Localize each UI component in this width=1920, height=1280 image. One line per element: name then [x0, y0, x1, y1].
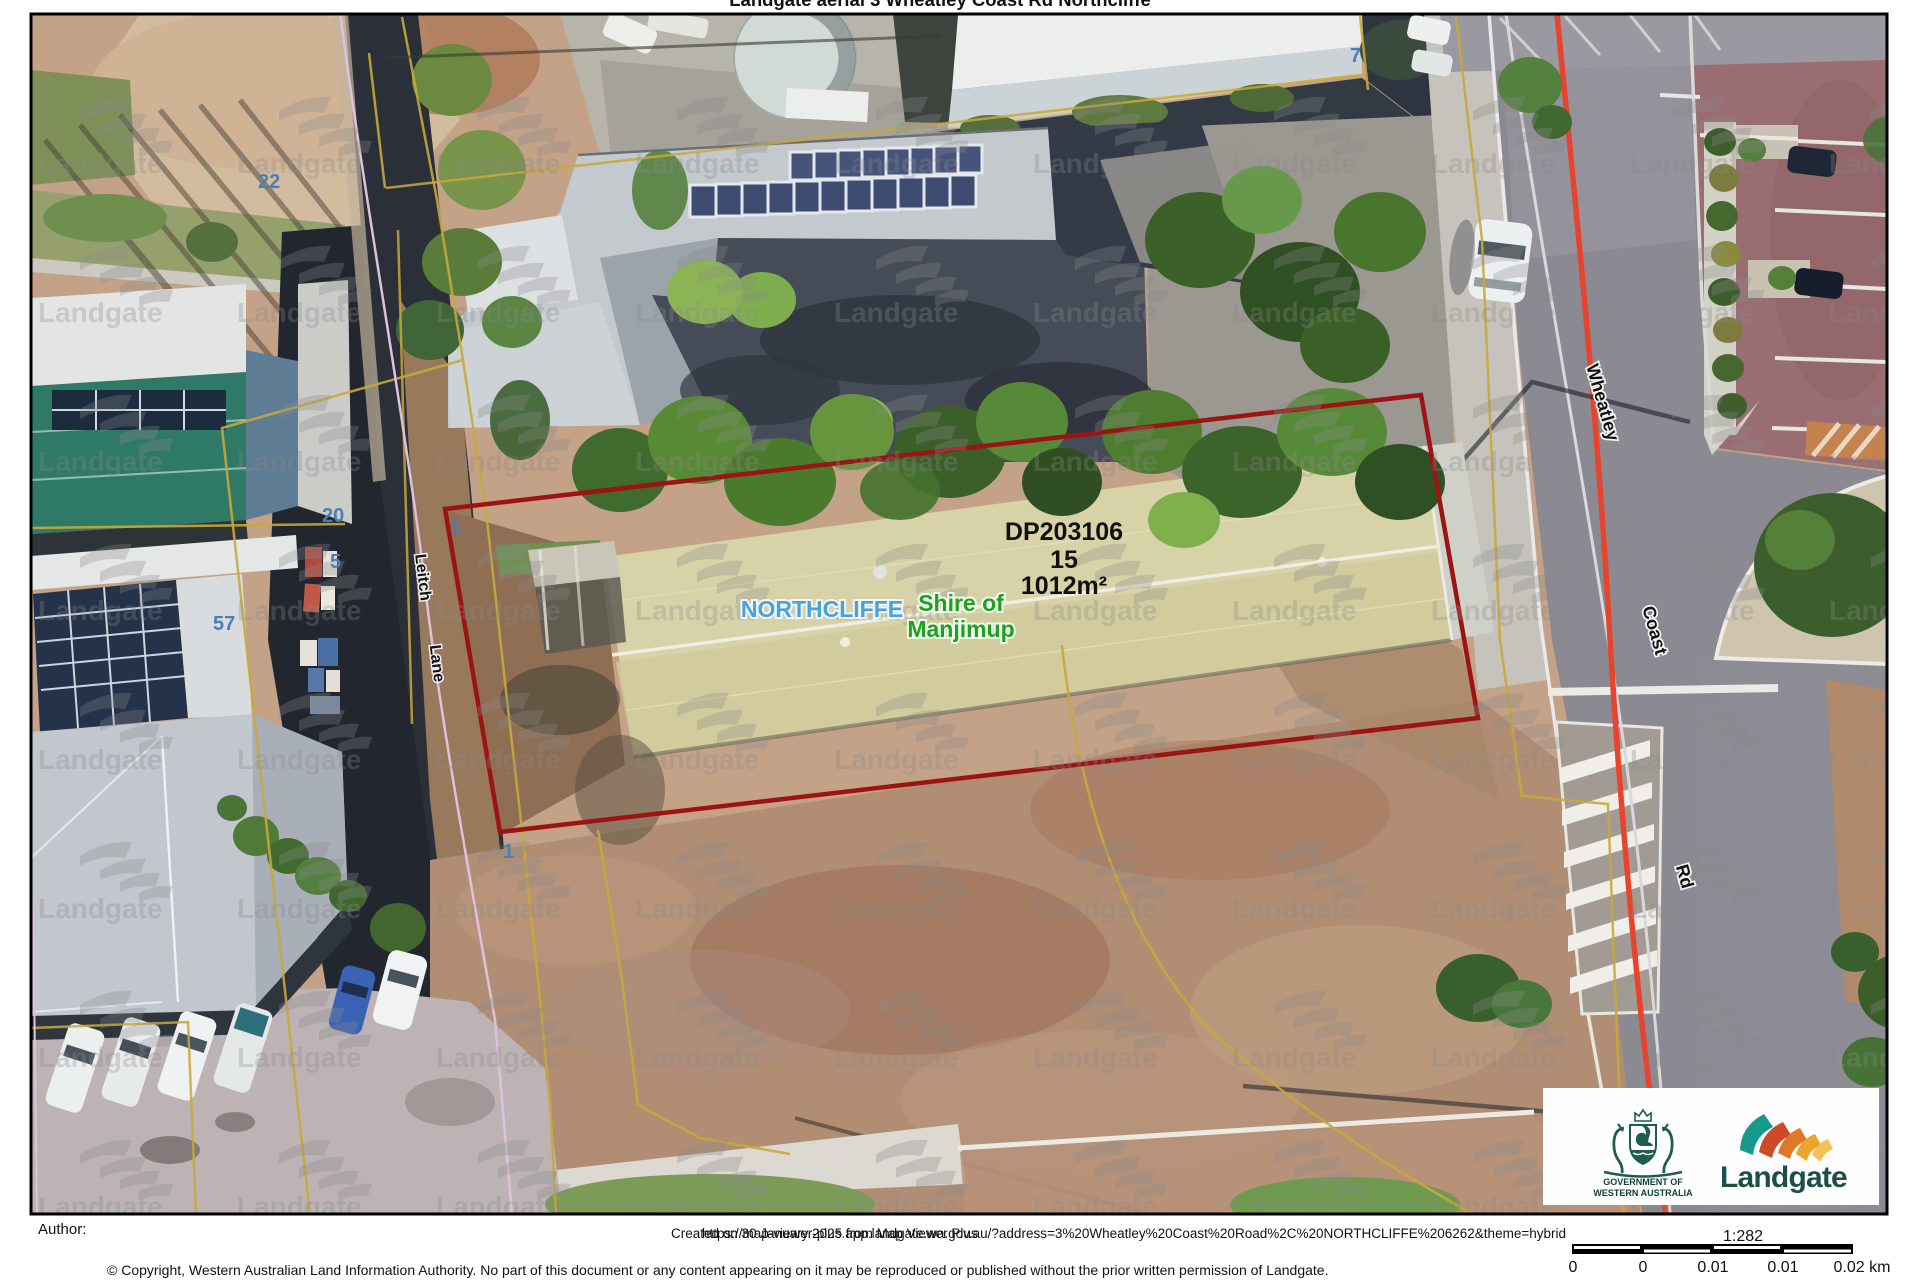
svg-text:© Copyright, Western Australia: © Copyright, Western Australian Land Inf…: [107, 1262, 1328, 1278]
svg-text:Author:: Author:: [38, 1221, 86, 1238]
svg-text:0.01: 0.01: [1697, 1259, 1728, 1276]
svg-text:NORTHCLIFFE: NORTHCLIFFE: [741, 596, 903, 622]
svg-text:DP203106: DP203106: [1005, 518, 1123, 546]
svg-text:3: 3: [450, 517, 461, 539]
svg-text:5: 5: [330, 551, 341, 573]
svg-text:7: 7: [1350, 45, 1361, 67]
svg-text:1: 1: [503, 841, 514, 863]
svg-text:https://map-viewer-plus.app.la: https://map-viewer-plus.app.landgate.wa.…: [702, 1226, 1566, 1241]
svg-text:WESTERN AUSTRALIA: WESTERN AUSTRALIA: [1593, 1188, 1693, 1198]
svg-text:57: 57: [213, 613, 235, 635]
svg-text:Landgate: Landgate: [1720, 1161, 1847, 1194]
svg-text:1:282: 1:282: [1723, 1228, 1763, 1245]
svg-text:0.02 km: 0.02 km: [1834, 1259, 1891, 1276]
svg-text:22: 22: [258, 171, 280, 193]
svg-text:Landgate aerial 3 Wheatley Coa: Landgate aerial 3 Wheatley Coast Rd Nort…: [729, 0, 1150, 10]
svg-text:Manjimup: Manjimup: [907, 616, 1014, 642]
svg-text:GOVERNMENT OF: GOVERNMENT OF: [1603, 1177, 1683, 1187]
svg-text:0.01: 0.01: [1767, 1259, 1798, 1276]
svg-text:15: 15: [1050, 546, 1078, 574]
svg-text:20: 20: [322, 505, 344, 527]
svg-text:0: 0: [1569, 1259, 1578, 1276]
svg-text:Shire of: Shire of: [918, 590, 1004, 616]
svg-text:1012m²: 1012m²: [1021, 572, 1107, 600]
svg-text:0: 0: [1639, 1259, 1648, 1276]
